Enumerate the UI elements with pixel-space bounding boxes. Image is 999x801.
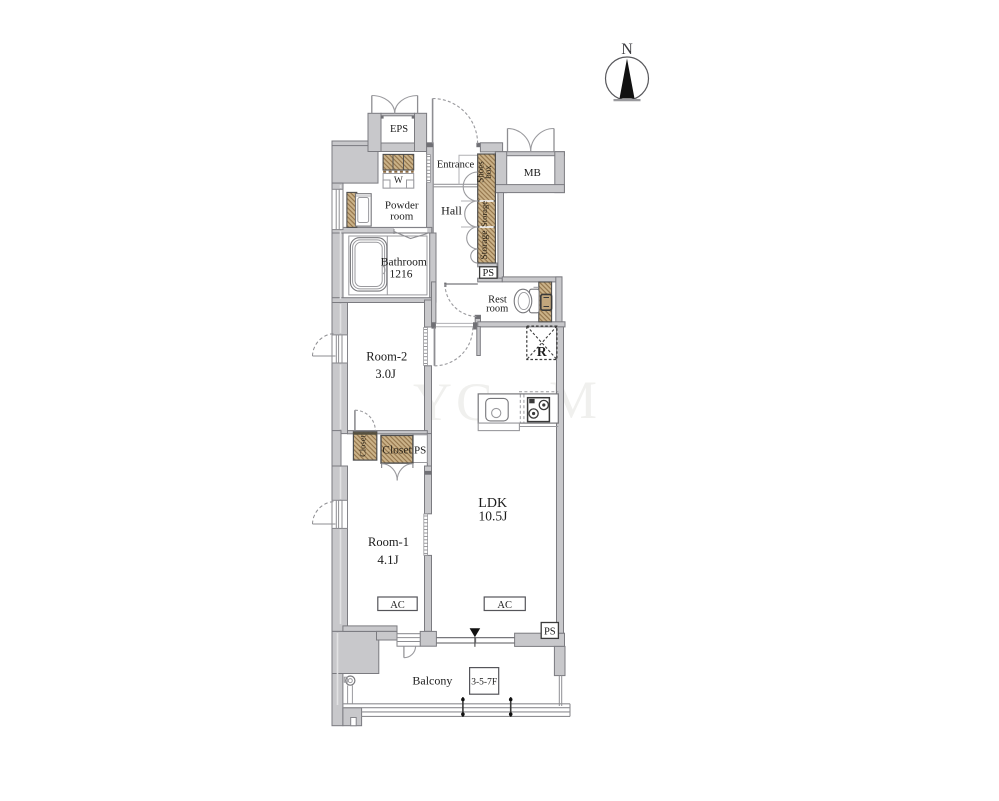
- svg-text:PS: PS: [414, 444, 426, 456]
- svg-text:Entrance: Entrance: [437, 160, 475, 171]
- svg-text:Bathroom: Bathroom: [381, 257, 427, 269]
- svg-text:Room-2: Room-2: [366, 349, 407, 363]
- svg-text:box: box: [483, 165, 493, 179]
- svg-text:AC: AC: [497, 600, 512, 611]
- svg-text:Closet: Closet: [382, 445, 412, 457]
- svg-text:Storage: Storage: [480, 230, 490, 259]
- svg-text:Room-1: Room-1: [368, 535, 409, 549]
- svg-text:1216: 1216: [390, 269, 413, 281]
- svg-text:W: W: [394, 176, 403, 186]
- svg-text:Closet: Closet: [358, 435, 368, 457]
- svg-text:3.0J: 3.0J: [375, 367, 396, 381]
- svg-text:3-5-7F: 3-5-7F: [471, 678, 497, 688]
- svg-text:Balcony: Balcony: [412, 673, 452, 687]
- svg-text:MB: MB: [524, 167, 541, 179]
- svg-text:Hall: Hall: [441, 204, 462, 218]
- svg-text:PS: PS: [482, 268, 494, 279]
- svg-text:PS: PS: [544, 627, 556, 638]
- svg-text:room: room: [390, 211, 414, 223]
- svg-text:EPS: EPS: [390, 124, 408, 135]
- svg-text:N: N: [621, 41, 633, 58]
- svg-text:10.5J: 10.5J: [479, 508, 508, 523]
- svg-text:R: R: [537, 344, 547, 359]
- svg-text:AC: AC: [390, 600, 405, 611]
- svg-text:Storage: Storage: [479, 201, 489, 227]
- svg-text:room: room: [486, 304, 508, 315]
- svg-text:4.1J: 4.1J: [377, 552, 398, 567]
